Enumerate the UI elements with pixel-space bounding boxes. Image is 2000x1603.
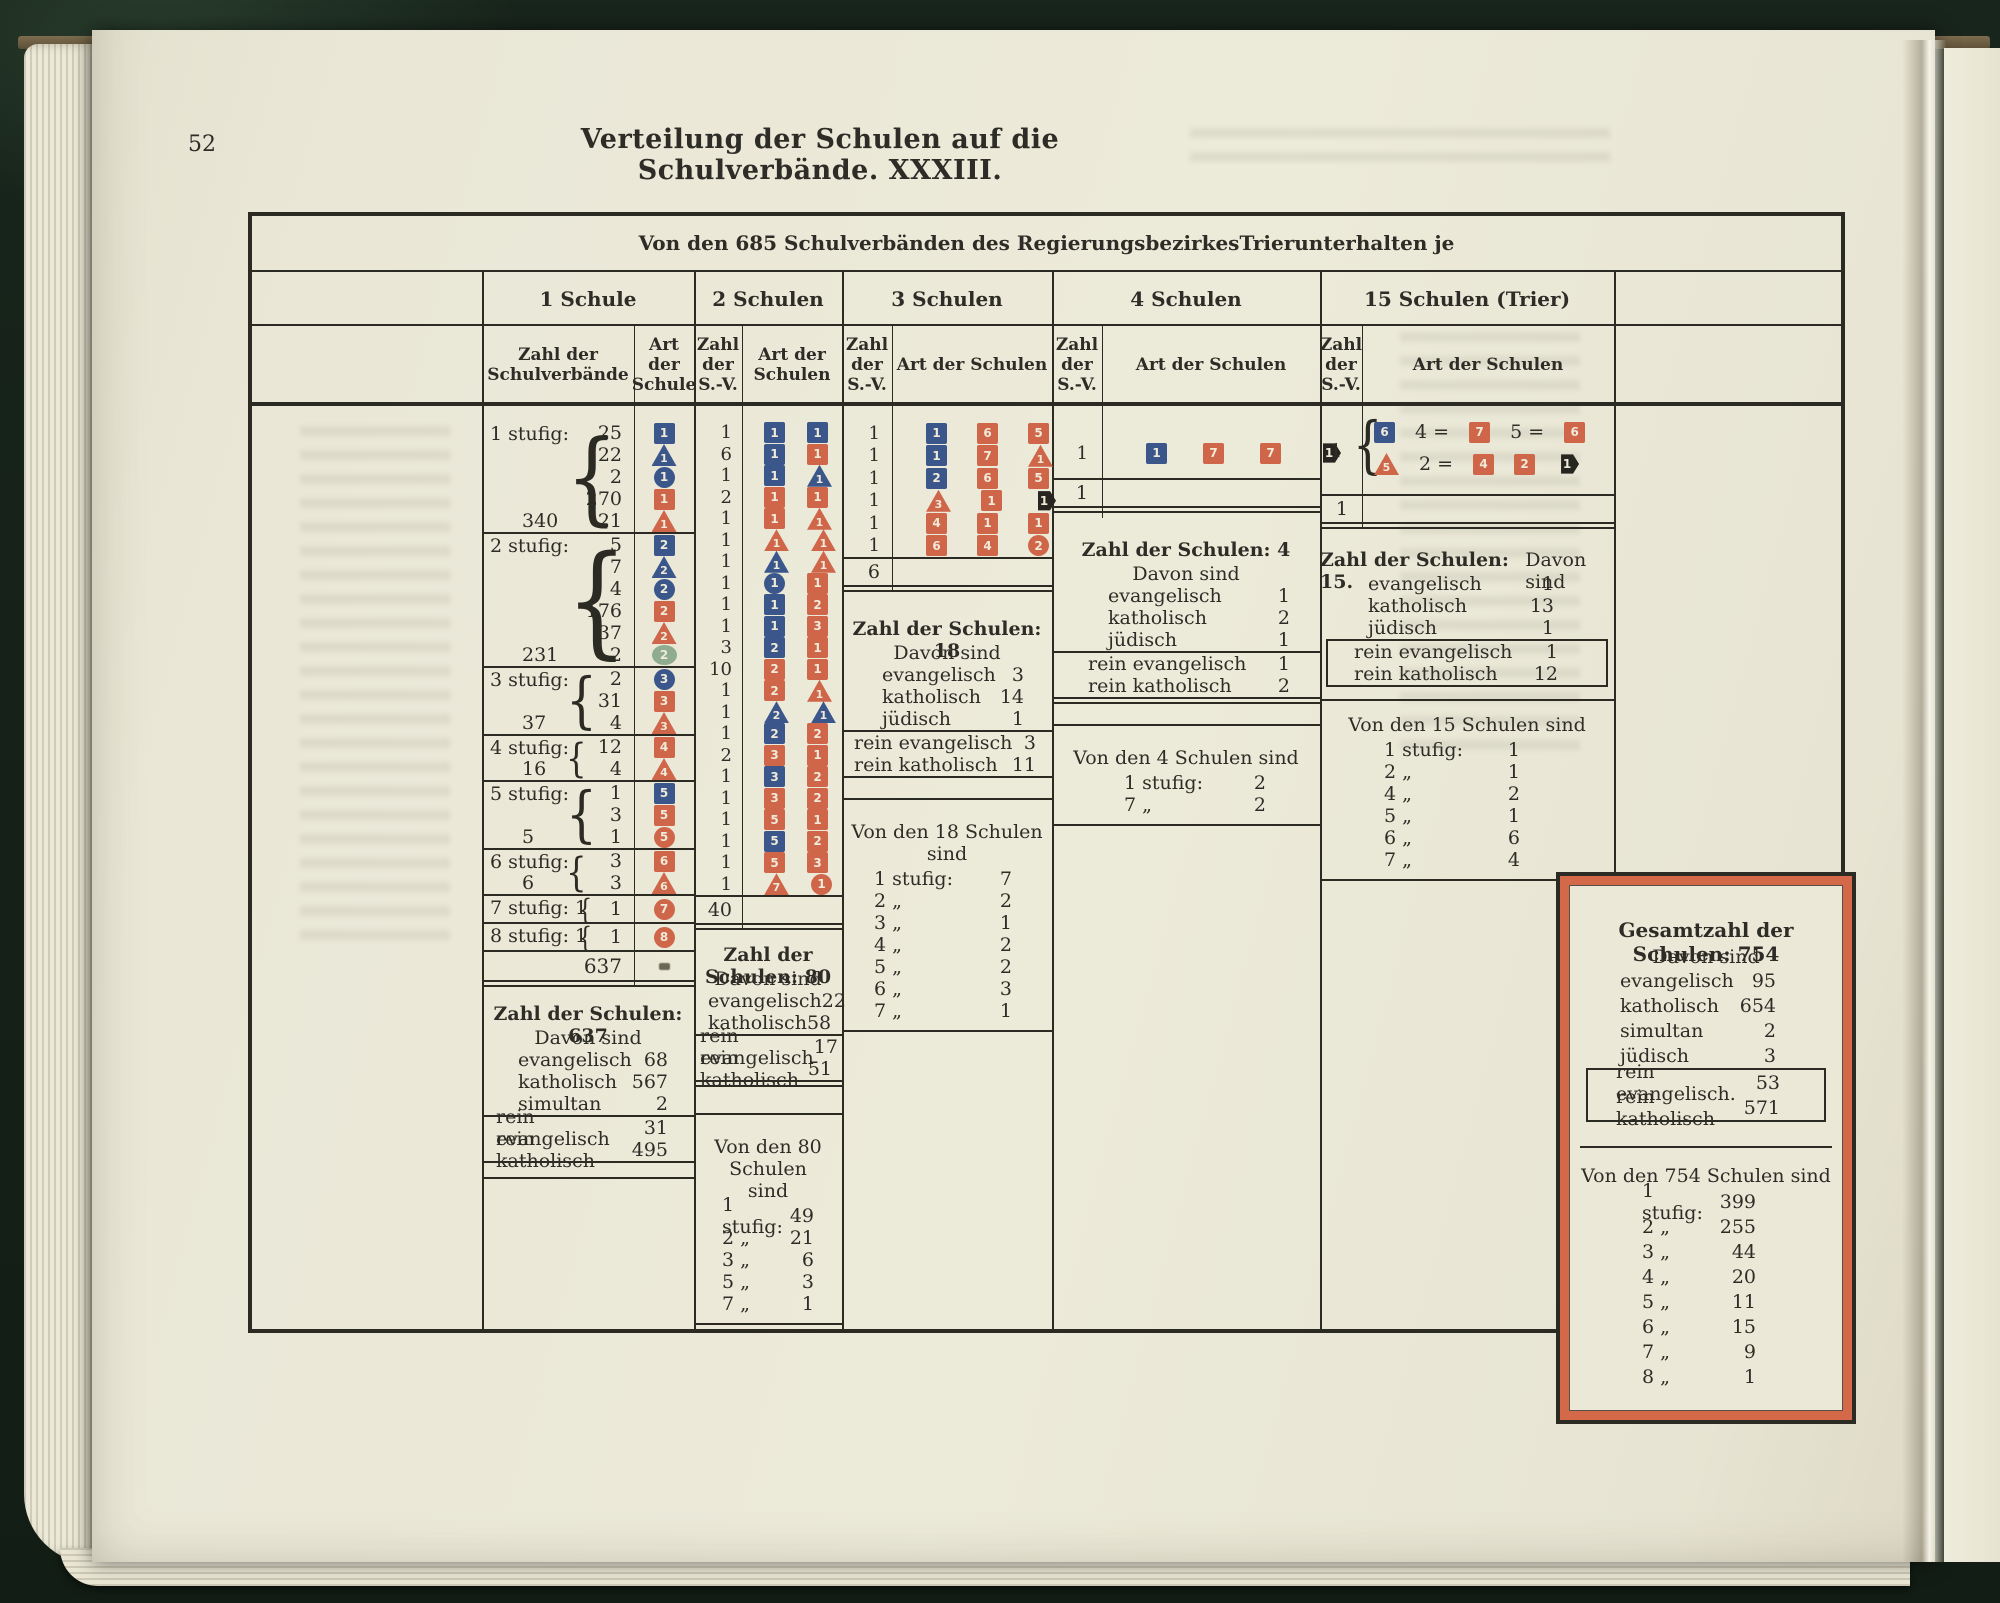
schulart-cell: 11 <box>742 551 836 573</box>
stufig-label: 7 „ <box>722 1293 750 1315</box>
confession-value: 2 <box>656 1093 668 1115</box>
sq-blue-1-symbol: 1 <box>926 445 947 466</box>
sv-count: 1 <box>694 874 742 895</box>
rein-summary-row: rein katholisch11 <box>842 754 1052 776</box>
sv-count: 1 <box>694 422 742 443</box>
stufig-value: 1 <box>1744 1366 1756 1388</box>
schulart-cell: 3 <box>634 712 694 734</box>
col-header-4-schulen: 4 Schulen <box>1052 274 1320 324</box>
sq-blue-1-symbol: 1 <box>807 422 828 443</box>
stufig-label: 1 stufig: <box>1384 739 1463 761</box>
sv-count: 1 <box>694 551 742 572</box>
stufig-summary-row: 4 „20 <box>1580 1265 1832 1290</box>
confession-label: rein katholisch <box>1354 663 1498 685</box>
sq-red-1-symbol: 1 <box>807 809 828 830</box>
rule <box>842 1030 1052 1032</box>
confession-label: rein katholisch <box>854 754 998 776</box>
schulart-cell: 11 <box>742 422 828 443</box>
sv-count: 1 <box>1330 440 1342 462</box>
sv-count: 10 <box>694 659 742 680</box>
schulart-cell: 1771 <box>1102 443 1341 464</box>
stufig-value: 3 <box>1000 978 1012 1000</box>
sq-red-3-symbol: 3 <box>807 852 828 873</box>
sv-count: 1 <box>694 788 742 809</box>
sq-red-1-symbol: 1 <box>807 637 828 658</box>
confession-label: rein katholisch <box>1088 675 1232 697</box>
rule <box>842 798 1052 800</box>
schulart-cell: 1 <box>634 510 694 532</box>
stufig-summary-row: 2 „2 <box>842 890 1052 912</box>
sv-count: 1 <box>694 508 742 529</box>
schulart-cell: 71 <box>742 873 832 895</box>
subheader-zahl-sv: Zahl der S.-V. <box>694 328 742 402</box>
multiplier-text: 2 = <box>1419 453 1453 475</box>
ink-smudge-icon <box>659 963 670 970</box>
cir-red-1-symbol: 1 <box>811 874 832 895</box>
schulverband-row: 36 <box>482 872 694 894</box>
schulverbaende-count: 4 <box>482 712 634 734</box>
confession-value: 1 <box>1546 641 1558 663</box>
sq-blue-5-symbol: 5 <box>764 831 785 852</box>
schulart-cell: 1 <box>634 467 694 488</box>
sv-count: 6 <box>694 444 742 465</box>
stufig-summary: Von den 15 Schulen sind1 stufig:12 „14 „… <box>1320 715 1614 871</box>
schulverband-row: 1171 <box>842 445 1052 468</box>
sv-count: 1 <box>694 852 742 873</box>
schulart-cell: 51 <box>742 809 828 830</box>
stufig-group-total: 340 <box>522 510 558 532</box>
sq-red-7-symbol: 7 <box>1469 422 1490 443</box>
rule <box>1580 1146 1832 1148</box>
tri-blue-1-symbol: 1 <box>764 551 789 573</box>
confession-label: rein katholisch <box>496 1128 632 1172</box>
stufig-label: 3 „ <box>874 912 902 934</box>
confession-value: 3 <box>1012 664 1024 686</box>
summary-row: jüdisch1 <box>1052 629 1320 651</box>
sq-red-5-symbol: 5 <box>764 852 785 873</box>
sq-red-4-symbol: 4 <box>1473 454 1494 475</box>
schulart-cell: 5 <box>634 783 694 804</box>
rule <box>694 1113 842 1115</box>
schulverband-row: 231 <box>694 745 842 767</box>
sq-blue-1-symbol: 1 <box>926 423 947 444</box>
col-header-15-schulen-trier: 15 Schulen (Trier) <box>1320 274 1614 324</box>
stufig-label: 3 „ <box>1642 1241 1670 1263</box>
schulart-cell: 4 <box>634 758 694 780</box>
confession-value: 495 <box>632 1139 668 1161</box>
schulart-cell: 21 <box>742 701 836 723</box>
sq-red-5-symbol: 5 <box>1028 423 1049 444</box>
stufig-label: 7 „ <box>1124 794 1152 816</box>
rows: 1116111112111111111111111121133211021121… <box>694 406 842 895</box>
schulart-cell: 3 <box>634 669 694 690</box>
rein-summary-row: rein katholisch495 <box>482 1139 694 1161</box>
rule <box>1320 522 1614 529</box>
schulverband-row: 111 <box>694 530 842 552</box>
schulart-cell: 5 <box>634 827 694 848</box>
confession-label: evangelisch <box>1108 585 1222 607</box>
sq-red-3-symbol: 3 <box>764 745 785 766</box>
schulverband-row: 111 <box>694 508 842 530</box>
confession-label: evangelisch <box>882 664 996 686</box>
confession-value: 11 <box>1012 754 1036 776</box>
stufig-label: 3 stufig: <box>490 669 569 691</box>
schulart-cell: 642 <box>892 535 1049 556</box>
stufig-summary-row: 6 „6 <box>1320 827 1614 849</box>
sq-red-1-symbol: 1 <box>807 487 828 508</box>
schulart-cell: 2 <box>634 601 694 622</box>
schulart-cell: 1 <box>634 423 694 444</box>
sq-red-6-symbol: 6 <box>654 851 675 872</box>
schulverband-row: 152 <box>694 831 842 853</box>
schulart-cell: 31 <box>742 745 828 766</box>
confession-value: 1 <box>1278 653 1290 675</box>
subheader-art-der-schule: Art der Schule <box>634 328 694 402</box>
total-row: 40 <box>694 897 842 923</box>
schulart-cell: 3 <box>634 691 694 712</box>
confession-value: 51 <box>808 1058 832 1080</box>
sq-red-3-symbol: 3 <box>764 788 785 809</box>
rein-box: rein evangelisch1rein katholisch12 <box>1326 639 1608 687</box>
stufig-value: 399 <box>1720 1191 1756 1213</box>
stufig-group-total: 231 <box>522 644 558 666</box>
brace-glyph: { <box>566 850 587 894</box>
sq-red-6-symbol: 6 <box>977 468 998 489</box>
subheader-art-der-schulen: Art der Schulen <box>1102 328 1320 402</box>
stufig-label: 6 „ <box>1642 1316 1670 1338</box>
sv-count: 1 <box>694 680 742 701</box>
stufig-group-total: 37 <box>522 712 546 734</box>
rule <box>482 1177 694 1179</box>
schulart-cell: 311 <box>892 490 1056 512</box>
sv-count: 1 <box>694 831 742 852</box>
stufig-value: 7 <box>1000 868 1012 890</box>
stufig-label: 5 „ <box>722 1271 750 1293</box>
stufig-summary: Von den 18 Schulen sind1 stufig:72 „23 „… <box>842 822 1052 1022</box>
confession-label: jüdisch <box>1368 617 1437 639</box>
sv-count: 1 <box>694 594 742 615</box>
rein-box: rein evangelisch.53rein katholisch571 <box>1586 1068 1826 1122</box>
sq-red-1-symbol: 1 <box>807 659 828 680</box>
stufig-summary-row: 6 „15 <box>1580 1315 1832 1340</box>
confession-label: rein katholisch <box>1616 1086 1744 1130</box>
tri-red-3-symbol: 3 <box>926 490 951 512</box>
schulart-cell: 4 <box>634 737 694 758</box>
sq-blue-2-symbol: 2 <box>764 723 785 744</box>
sq-blue-1-symbol: 1 <box>764 616 785 637</box>
ell-green-2-symbol: 2 <box>652 645 677 665</box>
summary-subtitle: Davon sind <box>482 1027 694 1049</box>
summary-row: evangelisch1 <box>1052 585 1320 607</box>
stufig-group-total: 5 <box>522 826 534 848</box>
stufig-label: 1 stufig: <box>1124 772 1203 794</box>
total-value: 40 <box>694 899 742 921</box>
column-15-schulen-body: 1{64 =75 =652 =4211Zahl der Schulen: 15.… <box>1320 406 1614 881</box>
rule <box>842 585 1052 592</box>
stufig-label: 8 stufig: 1 <box>490 925 587 947</box>
schulart-cell: 165 <box>892 423 1049 444</box>
stufig-summary-row: 4 „2 <box>1320 783 1614 805</box>
stufig-group: 2512212127012111 stufig:340{ <box>482 422 694 534</box>
sv-count: 1 <box>694 530 742 551</box>
stufig-label: 1 stufig: <box>874 868 953 890</box>
schulart-cell: 1 <box>634 444 694 466</box>
rule <box>842 776 1052 778</box>
cir-red-5-symbol: 5 <box>654 827 675 848</box>
schulart-cell: 11 <box>742 573 828 594</box>
schulart-cell: 21 <box>742 680 832 702</box>
page-number: 52 <box>188 132 216 157</box>
rule <box>1320 699 1614 701</box>
stufig-value: 2 <box>1000 890 1012 912</box>
stufig-group-total: 6 <box>522 872 534 894</box>
summary-title-text: Zahl der Schulen: 15. <box>1320 549 1509 573</box>
stufig-value: 3 <box>802 1271 814 1293</box>
confession-value: 1 <box>1278 585 1290 607</box>
schulart-cell: 32 <box>742 788 828 809</box>
stufig-summary-title: Von den 18 Schulen sind <box>842 822 1052 866</box>
confession-value: 95 <box>1752 970 1776 992</box>
stufig-value: 1 <box>1508 805 1520 827</box>
sq-blue-5-symbol: 5 <box>654 783 675 804</box>
schulen-summary: Gesamtzahl der Schulen: 754Davon sindeva… <box>1580 918 1832 1122</box>
schulverband-row: 1021 <box>694 659 842 681</box>
stufig-label: 6 „ <box>1384 827 1412 849</box>
schulverbaende-count: 31 <box>482 690 634 712</box>
brace-glyph: { <box>566 668 597 734</box>
stufig-value: 1 <box>802 1293 814 1315</box>
schulverband-row: 121 <box>694 702 842 724</box>
schulart-cell: 2 <box>634 622 694 644</box>
total-value: 6 <box>842 561 892 583</box>
schulen-summary: Zahl der Schulen: 637Davon sindevangelis… <box>482 1003 694 1163</box>
tri-red-1-symbol: 1 <box>807 680 832 702</box>
subheader-zahl-sv: Zahl der S.-V. <box>1052 328 1102 402</box>
confession-value: 3 <box>1024 732 1036 754</box>
stufig-label: 7 „ <box>1384 849 1412 871</box>
schulverband-row: 111 <box>694 551 842 573</box>
stufig-label: 4 „ <box>1384 783 1412 805</box>
sv-count: 2 <box>694 487 742 508</box>
facing-page <box>1944 48 2000 1562</box>
stufig-value: 2 <box>1254 772 1266 794</box>
schulverband-row: 111 <box>694 465 842 487</box>
sq-red-2-symbol: 2 <box>1514 454 1535 475</box>
stufig-label: 6 „ <box>874 978 902 1000</box>
schulverbaende-count: 4 <box>482 758 634 780</box>
stufig-group: 1535155 stufig:5{ <box>482 782 694 850</box>
stufig-summary-row: 1 stufig:399 <box>1580 1190 1832 1215</box>
multiplier-text: 5 = <box>1510 421 1544 443</box>
schulart-cell: 265 <box>892 468 1049 489</box>
tri-blue-2-symbol: 2 <box>764 701 789 723</box>
sq-blue-2-symbol: 2 <box>926 468 947 489</box>
rule <box>694 923 842 930</box>
confession-value: 12 <box>1534 663 1558 685</box>
schulverband-row: 1165 <box>842 422 1052 445</box>
summary-title: Zahl der Schulen: 18 <box>842 618 1052 642</box>
col-header-1-schule: 1 Schule <box>482 274 694 324</box>
schulen-summary: Zahl der Schulen: 4Davon sindevangelisch… <box>1052 539 1320 704</box>
stufig-label: 7 stufig: 1 <box>490 897 587 919</box>
schulart-cell: 7 <box>634 899 694 920</box>
sq-red-4-symbol: 4 <box>926 513 947 534</box>
rows: 116511711265131114111642 <box>842 406 1052 557</box>
stufig-label: 7 „ <box>1642 1341 1670 1363</box>
confession-value: 1 <box>1012 708 1024 730</box>
schulverband-row: 121 <box>694 680 842 702</box>
stufig-summary-row: 6 „3 <box>842 978 1052 1000</box>
summary-row: simultan2 <box>1580 1018 1832 1043</box>
summary-row: katholisch14 <box>842 686 1052 708</box>
stufig-value: 2 <box>1508 783 1520 805</box>
stufig-label: 8 „ <box>1642 1366 1670 1388</box>
stufig-value: 2 <box>1000 934 1012 956</box>
schulverband-row: 44 <box>482 758 694 780</box>
schulverband-row: 111 <box>694 573 842 595</box>
sv-count: 1 <box>694 702 742 723</box>
sq-red-4-symbol: 4 <box>654 737 675 758</box>
rule <box>252 270 1841 272</box>
column-3-schulen-body: 1165117112651311141116426Zahl der Schule… <box>842 406 1052 1032</box>
confession-label: jüdisch <box>1108 629 1177 651</box>
sq-red-6-symbol: 6 <box>1564 422 1585 443</box>
stufig-value: 1 <box>1508 761 1520 783</box>
confession-label: katholisch <box>882 686 981 708</box>
stufig-summary-row: 5 „1 <box>1320 805 1614 827</box>
confession-label: evangelisch <box>1368 573 1482 595</box>
schulverband-row: 1265 <box>842 467 1052 490</box>
sv-count: 1 <box>694 809 742 830</box>
cir-blue-2-symbol: 2 <box>654 579 675 600</box>
summary-row: jüdisch1 <box>842 708 1052 730</box>
schulverband-row: 11771 <box>1052 440 1320 466</box>
multiplier-text: 4 = <box>1415 421 1449 443</box>
confession-label: katholisch <box>518 1071 617 1093</box>
summary-row: jüdisch1 <box>1320 617 1614 639</box>
confession-value: 53 <box>1756 1072 1780 1094</box>
sq-red-5-symbol: 5 <box>1028 468 1049 489</box>
schulart-cell: 22 <box>742 723 828 744</box>
sv-count: 1 <box>694 616 742 637</box>
schulverband-row: 153 <box>694 852 842 874</box>
stufig-group: 36366 stufig:6{ <box>482 850 694 896</box>
sq-red-2-symbol: 2 <box>807 594 828 615</box>
schulart-cell: 11 <box>742 508 832 530</box>
schulart-cell: 11 <box>742 444 828 465</box>
schulverband-row: 171 <box>694 874 842 896</box>
confession-label: simultan <box>1620 1020 1703 1042</box>
schulart-cell: 2 <box>634 579 694 600</box>
stufig-value: 4 <box>1508 849 1520 871</box>
tri-red-4-symbol: 4 <box>652 758 677 780</box>
schulart-cell: 21 <box>742 659 828 680</box>
sq-red-1-symbol: 1 <box>807 745 828 766</box>
rule <box>1052 506 1320 513</box>
tri-red-3-symbol: 3 <box>652 712 677 734</box>
stufig-value: 49 <box>790 1205 814 1227</box>
confession-value: 31 <box>644 1117 668 1139</box>
caption-trier: Trier <box>1239 231 1294 255</box>
schulart-cell: 11 <box>742 487 828 508</box>
confession-value: 1 <box>1278 629 1290 651</box>
stufig-value: 6 <box>802 1249 814 1271</box>
tri-red-6-symbol: 6 <box>652 872 677 894</box>
confession-value: 571 <box>1744 1097 1780 1119</box>
sq-red-2-symbol: 2 <box>654 601 675 622</box>
sq-red-2-symbol: 2 <box>807 766 828 787</box>
stufig-value: 6 <box>1508 827 1520 849</box>
summary-title: Zahl der Schulen: 637 <box>482 1003 694 1027</box>
schulart-cell: 2 <box>634 535 694 556</box>
schulart-cell: 52 <box>742 831 828 852</box>
cir-red-2-symbol: 2 <box>1028 535 1049 556</box>
col-header-2-schulen: 2 Schulen <box>694 274 842 324</box>
tri-blue-2-symbol: 2 <box>652 556 677 578</box>
cir-blue-1-symbol: 1 <box>764 573 785 594</box>
summary-row: katholisch567 <box>482 1071 694 1093</box>
trier-schulen-row: 1{64 =75 =652 =421 <box>1320 406 1614 480</box>
schulart-cell: 8 <box>634 927 694 948</box>
stufig-label: 4 „ <box>874 934 902 956</box>
tri-blue-1-symbol: 1 <box>807 465 832 487</box>
stufig-group: 23313433 stufig:37{ <box>482 668 694 736</box>
sq-blue-2-symbol: 2 <box>654 535 675 556</box>
tri-red-1-symbol: 1 <box>807 508 832 530</box>
sq-red-3-symbol: 3 <box>654 691 675 712</box>
stufig-value: 20 <box>1732 1266 1756 1288</box>
tri-blue-1-symbol: 1 <box>811 701 836 723</box>
sq-blue-1-symbol: 1 <box>764 594 785 615</box>
schulverband-row: 1311 <box>842 490 1052 513</box>
sq-red-1-symbol: 1 <box>654 489 675 510</box>
confession-value: 2 <box>1278 675 1290 697</box>
sq-red-2-symbol: 2 <box>807 831 828 852</box>
column-1-schule-body: 2512212127012111 stufig:340{527242176237… <box>482 406 694 1179</box>
stufig-label: 5 stufig: <box>490 783 569 805</box>
schulverband-row: 113 <box>694 616 842 638</box>
stufig-summary-row: 8 „1 <box>1580 1365 1832 1390</box>
schulart-cell: 11 <box>742 529 836 551</box>
book-gutter <box>1902 40 1946 1562</box>
schulart-cell: 2 <box>634 645 694 665</box>
stufig-label: 2 „ <box>722 1227 750 1249</box>
brace-glyph: { <box>566 422 618 532</box>
stufig-summary-row: 5 „2 <box>842 956 1052 978</box>
sq-red-6-symbol: 6 <box>977 423 998 444</box>
stufig-label: 5 „ <box>1384 805 1412 827</box>
confession-value: 654 <box>1740 995 1776 1017</box>
total-value: 1 <box>1052 482 1102 504</box>
schulverband-row: 112 <box>694 594 842 616</box>
total-row: 1 <box>1320 496 1614 522</box>
rein-summary-row: rein evangelisch3 <box>842 732 1052 754</box>
stufig-label: 5 „ <box>874 956 902 978</box>
brace-glyph: { <box>578 896 592 922</box>
confession-label: katholisch <box>1368 595 1467 617</box>
confession-label: evangelisch <box>1620 970 1734 992</box>
rule <box>252 324 1841 326</box>
tri-red-2-symbol: 2 <box>652 622 677 644</box>
schulverband-row: 211 <box>694 487 842 509</box>
stufig-summary-row: 4 „2 <box>842 934 1052 956</box>
tri-blue-1-symbol: 1 <box>652 444 677 466</box>
summary-row: evangelisch3 <box>842 664 1052 686</box>
sq-red-1-symbol: 1 <box>977 513 998 534</box>
caption-prefix: Von den 685 Schulverbänden des Regierung… <box>639 231 1240 255</box>
rule <box>1052 724 1320 726</box>
total-row: 6 <box>842 559 1052 585</box>
